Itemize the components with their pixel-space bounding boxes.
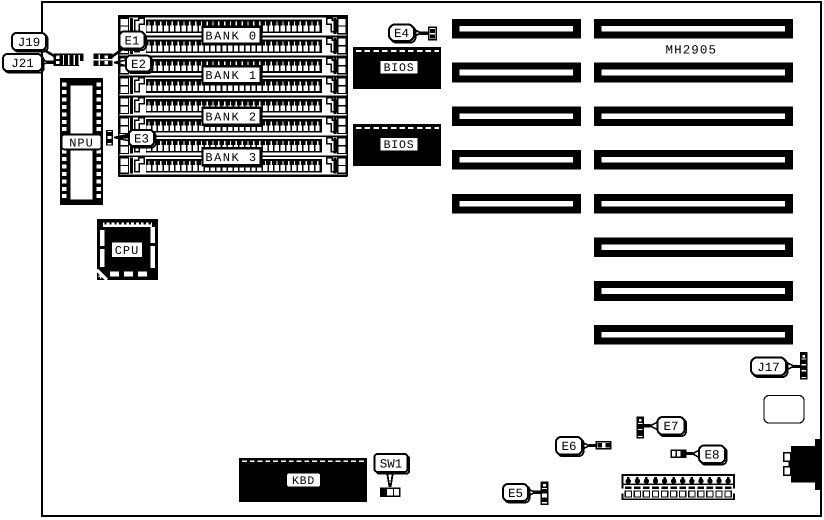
svg-text:MH2905: MH2905 <box>666 44 718 58</box>
svg-text:SW1: SW1 <box>380 457 403 471</box>
svg-text:E5: E5 <box>508 487 523 501</box>
svg-text:E8: E8 <box>704 449 719 463</box>
svg-text:J21: J21 <box>11 57 34 71</box>
svg-text:BANK 2: BANK 2 <box>205 111 257 125</box>
svg-text:E2: E2 <box>131 58 146 72</box>
svg-text:BIOS: BIOS <box>384 62 415 75</box>
svg-text:BANK 3: BANK 3 <box>205 151 257 165</box>
svg-text:E4: E4 <box>394 27 409 41</box>
svg-text:E6: E6 <box>561 440 576 454</box>
svg-text:E3: E3 <box>134 132 149 146</box>
svg-text:J17: J17 <box>757 361 780 375</box>
svg-text:BANK 0: BANK 0 <box>205 29 257 43</box>
svg-text:KBD: KBD <box>292 475 315 488</box>
svg-text:BANK 1: BANK 1 <box>205 69 257 83</box>
svg-text:E1: E1 <box>124 34 139 48</box>
svg-text:J19: J19 <box>18 36 41 50</box>
svg-text:CPU: CPU <box>115 244 140 258</box>
svg-text:NPU: NPU <box>69 136 94 150</box>
svg-text:E7: E7 <box>663 420 678 434</box>
svg-text:BIOS: BIOS <box>384 139 415 152</box>
